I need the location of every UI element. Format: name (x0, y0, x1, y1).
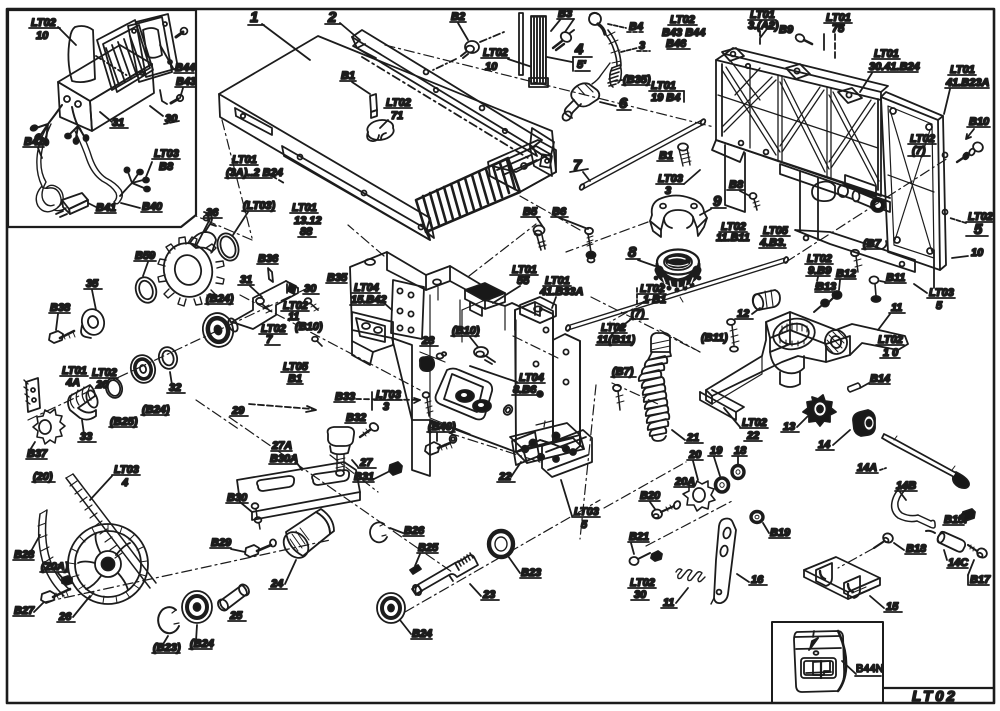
svg-text:10: 10 (36, 30, 49, 42)
svg-text:3: 3 (383, 401, 389, 413)
svg-text:B9: B9 (779, 24, 794, 36)
svg-text:19 B4: 19 B4 (651, 92, 680, 104)
svg-text:5': 5' (577, 59, 586, 71)
svg-text:LT02: LT02 (912, 688, 958, 705)
svg-text:4: 4 (574, 41, 584, 58)
svg-text:(B10): (B10) (295, 321, 323, 333)
svg-text:3.(A2): 3.(A2) (748, 20, 779, 32)
svg-text:B8: B8 (159, 161, 174, 173)
svg-text:4A: 4A (65, 377, 80, 389)
svg-text:75: 75 (832, 23, 845, 35)
svg-text:71: 71 (391, 110, 403, 122)
svg-text:41.B33A: 41.B33A (539, 286, 583, 298)
svg-text:(B11): (B11) (701, 332, 728, 344)
svg-text:55: 55 (517, 275, 530, 287)
svg-text:4: 4 (121, 477, 128, 489)
svg-text:1: 1 (250, 9, 258, 26)
svg-text:11.B11: 11.B11 (716, 232, 750, 244)
svg-text:B44N: B44N (856, 663, 884, 675)
svg-text:5: 5 (936, 300, 943, 312)
svg-text:20: 20 (95, 379, 109, 391)
svg-text:10: 10 (971, 247, 984, 259)
